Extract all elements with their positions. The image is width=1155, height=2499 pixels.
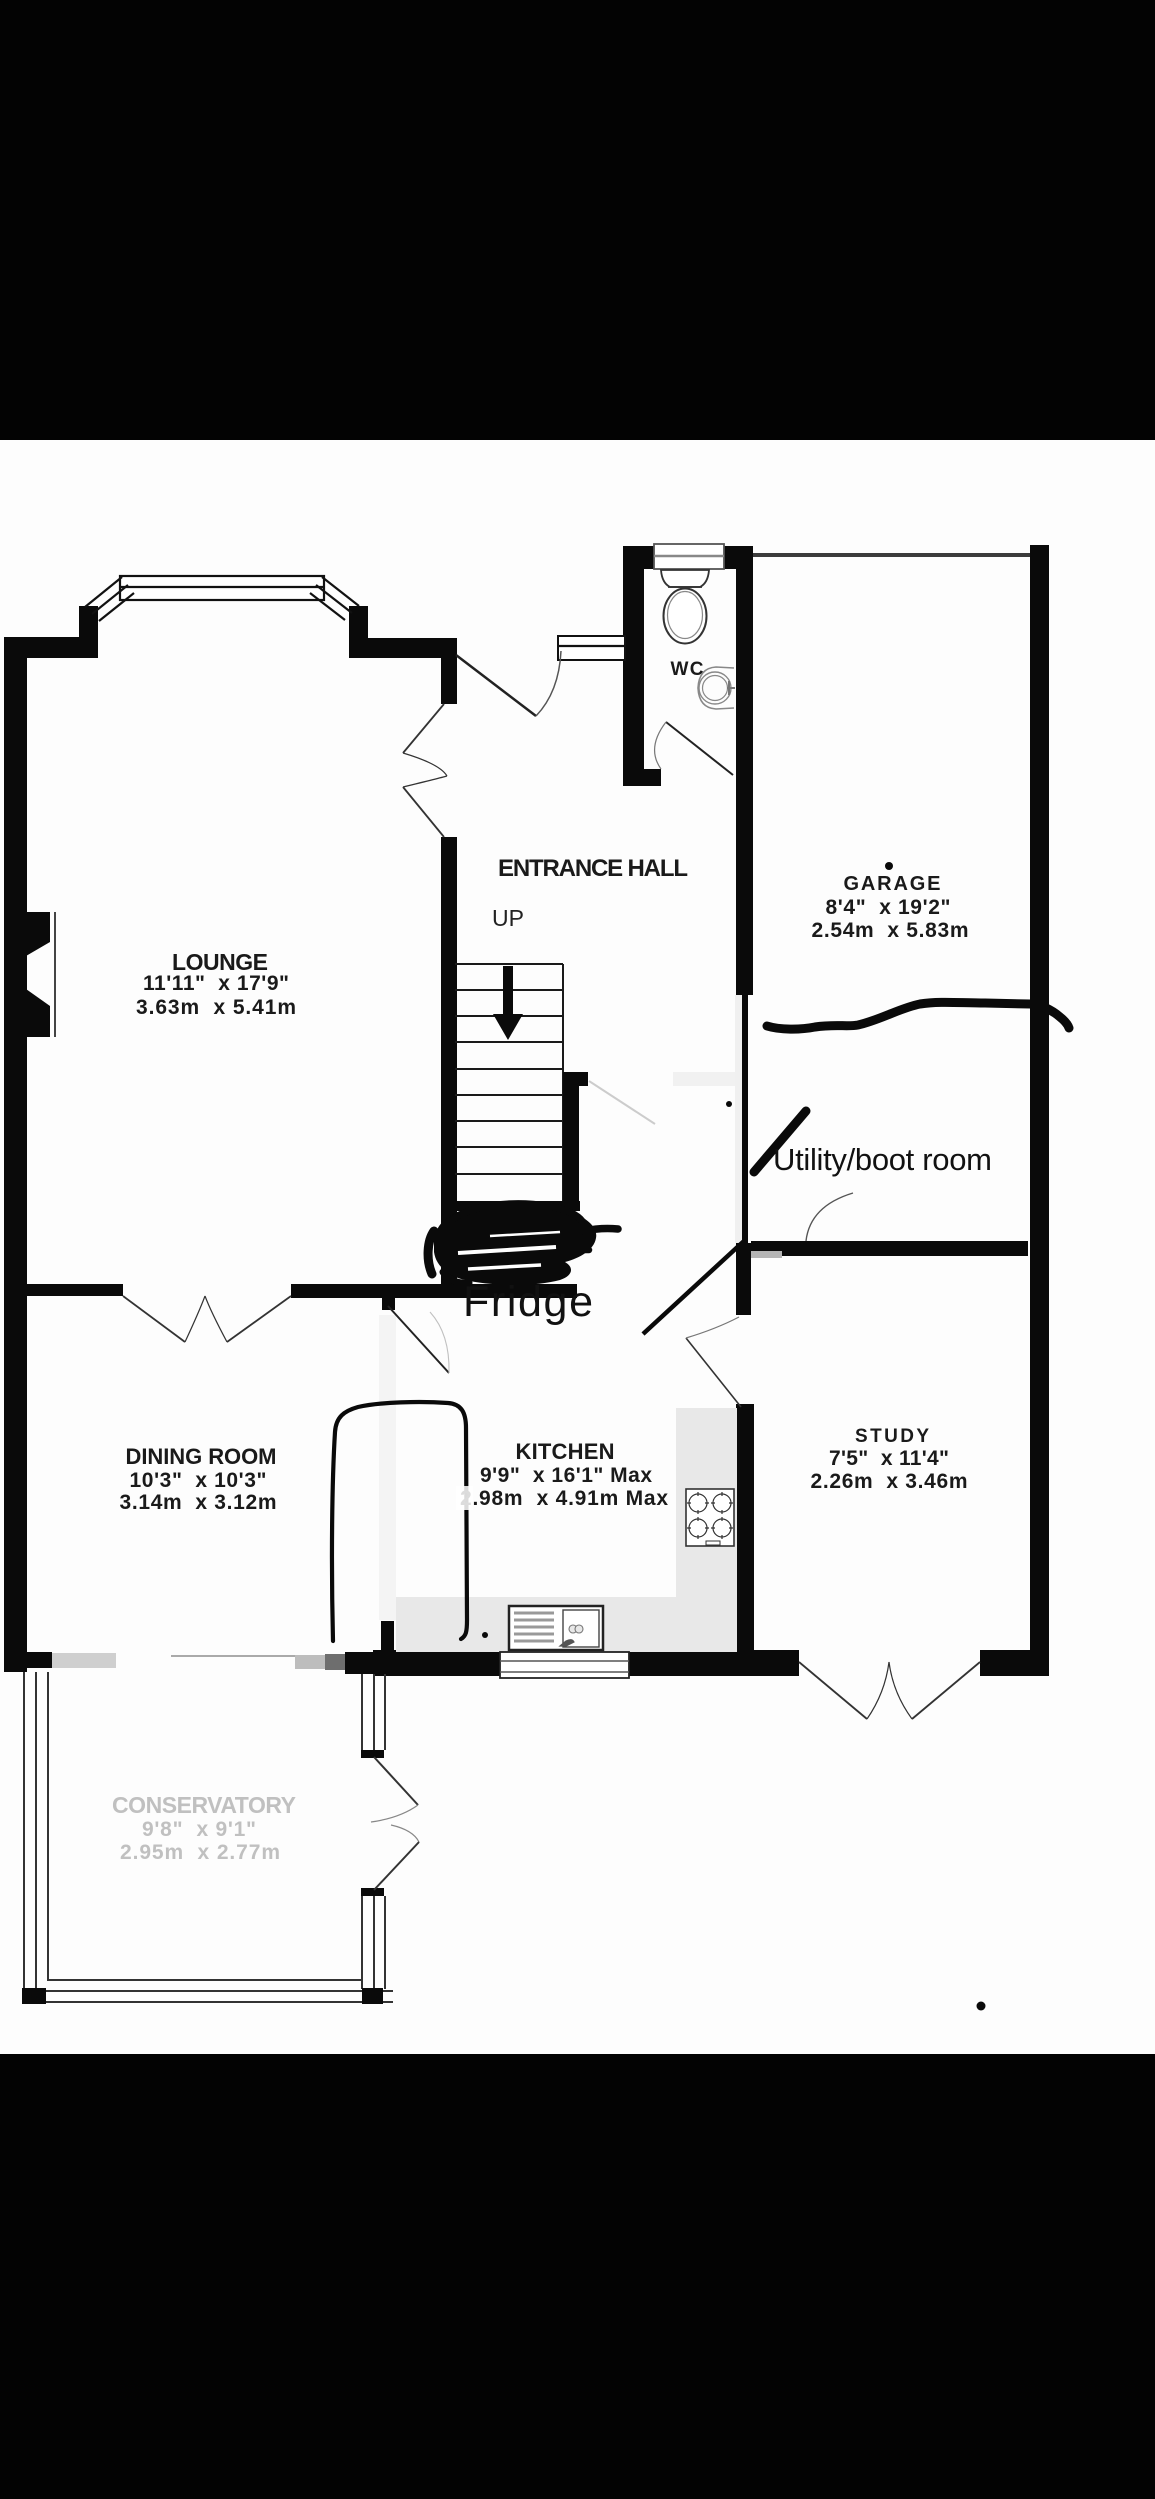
svg-text:9'8" x 9'1": 9'8" x 9'1" (142, 1818, 256, 1841)
svg-text:2.26m x 3.46m: 2.26m x 3.46m (811, 1470, 968, 1493)
svg-text:DINING ROOM: DINING ROOM (126, 1444, 277, 1469)
svg-text:UP: UP (492, 905, 524, 931)
svg-text:10'3" x 10'3": 10'3" x 10'3" (130, 1469, 267, 1492)
svg-text:9'9" x 16'1" Max: 9'9" x 16'1" Max (480, 1464, 652, 1487)
svg-text:CONSERVATORY: CONSERVATORY (112, 1792, 296, 1818)
svg-text:3.63m x 5.41m: 3.63m x 5.41m (136, 996, 296, 1019)
svg-text:STUDY: STUDY (855, 1426, 929, 1447)
svg-text:8'4" x 19'2": 8'4" x 19'2" (826, 896, 951, 919)
svg-text:2.95m x 2.77m: 2.95m x 2.77m (120, 1841, 280, 1864)
svg-text:11'11" x 17'9": 11'11" x 17'9" (143, 972, 289, 995)
svg-text:3.14m x 3.12m: 3.14m x 3.12m (120, 1491, 277, 1514)
svg-text:2.98m x 4.91m Max: 2.98m x 4.91m Max (460, 1487, 668, 1510)
svg-text:2.54m x 5.83m: 2.54m x 5.83m (812, 919, 969, 942)
svg-text:WC: WC (671, 659, 704, 680)
svg-text:Utility/boot room: Utility/boot room (773, 1142, 992, 1177)
svg-text:KITCHEN: KITCHEN (516, 1439, 615, 1464)
svg-text:7'5" x 11'4": 7'5" x 11'4" (829, 1447, 949, 1470)
svg-text:ENTRANCE HALL: ENTRANCE HALL (498, 855, 688, 882)
svg-text:Fridge: Fridge (463, 1278, 593, 1326)
